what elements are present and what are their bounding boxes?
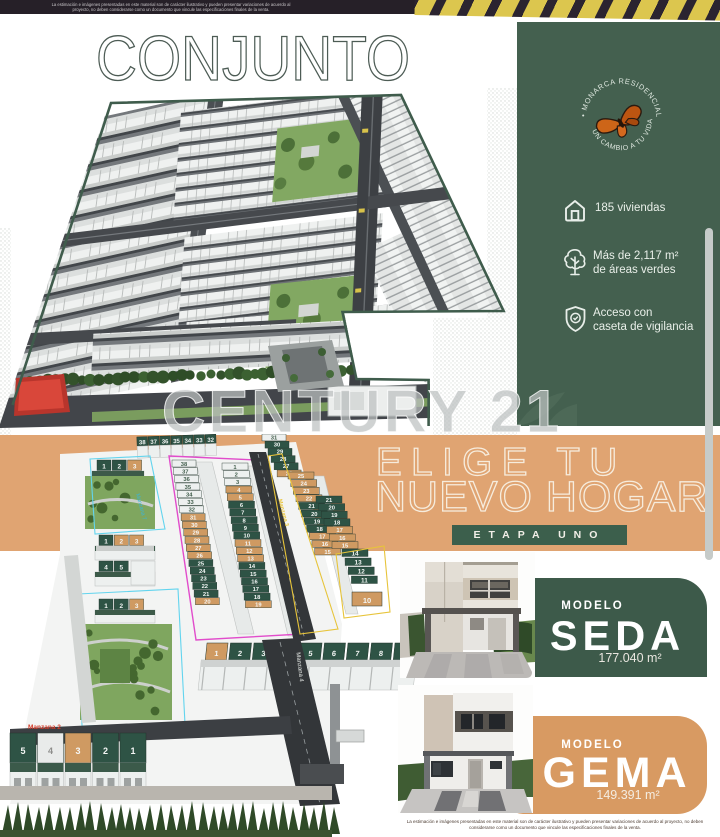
svg-text:34: 34 bbox=[186, 492, 193, 498]
svg-text:18: 18 bbox=[254, 595, 261, 601]
svg-text:2: 2 bbox=[118, 464, 122, 471]
svg-text:15: 15 bbox=[324, 550, 331, 556]
svg-text:20: 20 bbox=[328, 505, 334, 511]
svg-text:Manzana 2: Manzana 2 bbox=[28, 724, 61, 731]
svg-text:4: 4 bbox=[104, 565, 108, 572]
svg-text:25: 25 bbox=[298, 474, 305, 480]
svg-text:7: 7 bbox=[241, 511, 244, 517]
svg-text:22: 22 bbox=[202, 584, 208, 590]
svg-text:17: 17 bbox=[319, 535, 325, 541]
svg-text:36: 36 bbox=[183, 477, 190, 483]
svg-text:1: 1 bbox=[104, 603, 108, 610]
svg-text:31: 31 bbox=[190, 515, 197, 521]
svg-text:35: 35 bbox=[185, 485, 192, 491]
svg-text:23: 23 bbox=[303, 489, 310, 495]
svg-text:12: 12 bbox=[246, 549, 252, 555]
svg-text:29: 29 bbox=[192, 531, 199, 537]
svg-text:21: 21 bbox=[326, 498, 333, 504]
svg-text:18: 18 bbox=[334, 521, 341, 527]
svg-text:33: 33 bbox=[187, 500, 194, 506]
svg-text:32: 32 bbox=[189, 508, 195, 514]
svg-text:3: 3 bbox=[75, 746, 80, 756]
svg-text:13: 13 bbox=[355, 559, 363, 566]
svg-text:33: 33 bbox=[196, 438, 204, 444]
svg-text:• MONARCA RESIDENCIAL •: • MONARCA RESIDENCIAL • bbox=[575, 73, 664, 118]
svg-text:10: 10 bbox=[243, 534, 249, 540]
svg-text:16: 16 bbox=[339, 536, 346, 542]
svg-text:37: 37 bbox=[150, 440, 158, 446]
svg-text:18: 18 bbox=[316, 527, 323, 533]
svg-text:36: 36 bbox=[162, 439, 170, 445]
svg-text:27: 27 bbox=[195, 546, 201, 552]
svg-text:32: 32 bbox=[207, 438, 215, 444]
svg-text:20: 20 bbox=[311, 512, 317, 518]
svg-text:26: 26 bbox=[196, 554, 203, 560]
svg-text:24: 24 bbox=[300, 481, 307, 487]
svg-text:21: 21 bbox=[203, 592, 210, 598]
svg-text:3: 3 bbox=[133, 464, 137, 471]
svg-text:11: 11 bbox=[245, 541, 252, 547]
svg-text:38: 38 bbox=[181, 462, 188, 468]
svg-text:3: 3 bbox=[135, 539, 139, 546]
svg-text:31: 31 bbox=[271, 435, 278, 441]
svg-text:22: 22 bbox=[306, 497, 312, 503]
svg-text:35: 35 bbox=[173, 439, 181, 445]
svg-text:5: 5 bbox=[20, 746, 25, 756]
svg-text:15: 15 bbox=[342, 543, 349, 549]
svg-text:1: 1 bbox=[104, 539, 108, 546]
svg-text:2: 2 bbox=[120, 539, 124, 546]
svg-text:2: 2 bbox=[103, 746, 108, 756]
svg-text:24: 24 bbox=[199, 569, 206, 575]
svg-text:20: 20 bbox=[204, 600, 210, 606]
svg-text:2: 2 bbox=[235, 472, 238, 478]
svg-text:21: 21 bbox=[308, 504, 315, 510]
svg-text:28: 28 bbox=[194, 538, 201, 544]
svg-text:2: 2 bbox=[120, 603, 124, 610]
svg-text:34: 34 bbox=[184, 438, 192, 444]
svg-text:5: 5 bbox=[120, 565, 124, 572]
svg-text:30: 30 bbox=[191, 523, 197, 529]
svg-text:10: 10 bbox=[363, 596, 371, 605]
svg-text:19: 19 bbox=[331, 513, 338, 519]
svg-text:3: 3 bbox=[135, 603, 139, 610]
svg-text:30: 30 bbox=[274, 443, 280, 449]
svg-text:19: 19 bbox=[255, 603, 262, 609]
svg-text:16: 16 bbox=[322, 542, 329, 548]
svg-text:23: 23 bbox=[200, 577, 207, 583]
svg-text:17: 17 bbox=[336, 528, 342, 534]
svg-text:1: 1 bbox=[102, 464, 106, 471]
svg-text:17: 17 bbox=[253, 587, 259, 593]
svg-text:37: 37 bbox=[182, 469, 188, 475]
svg-text:19: 19 bbox=[314, 519, 321, 525]
svg-text:14: 14 bbox=[249, 564, 256, 570]
svg-text:13: 13 bbox=[247, 557, 254, 563]
svg-text:11: 11 bbox=[361, 577, 368, 584]
svg-text:12: 12 bbox=[358, 568, 366, 575]
svg-text:15: 15 bbox=[250, 572, 257, 578]
svg-text:38: 38 bbox=[139, 440, 147, 446]
svg-text:25: 25 bbox=[198, 561, 205, 567]
svg-text:4: 4 bbox=[48, 746, 53, 756]
svg-text:1: 1 bbox=[130, 746, 135, 756]
svg-text:16: 16 bbox=[251, 580, 258, 586]
